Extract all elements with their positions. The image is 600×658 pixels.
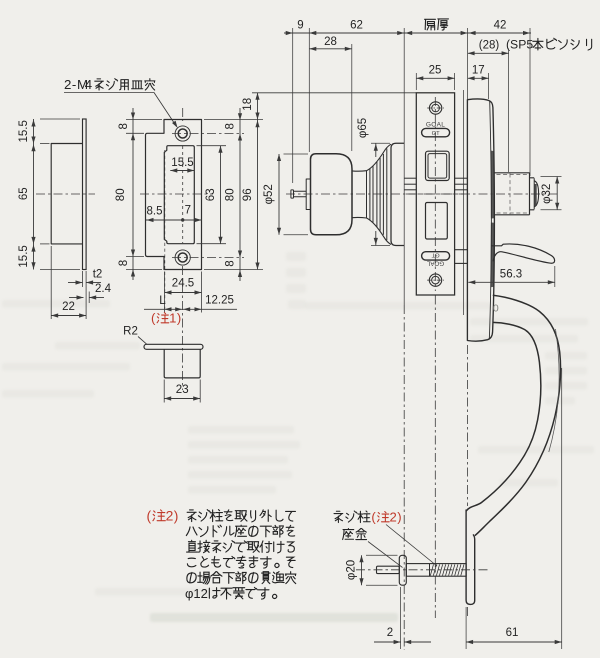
svg-text:L: L: [159, 295, 166, 307]
svg-text:8.5: 8.5: [147, 206, 163, 218]
svg-text:φ20: φ20: [346, 560, 358, 580]
svg-text:8: 8: [118, 123, 130, 129]
svg-text:0: 0: [493, 303, 499, 315]
svg-text:1: 1: [169, 311, 176, 326]
svg-text:9: 9: [297, 20, 303, 32]
svg-text:(28): (28): [479, 40, 500, 52]
svg-text:17: 17: [472, 65, 485, 77]
svg-text:(: (: [371, 510, 376, 525]
svg-text:24.5: 24.5: [172, 278, 194, 290]
svg-text:(SP5: (SP5: [506, 38, 533, 52]
svg-text:65: 65: [18, 187, 30, 200]
svg-text:): ): [397, 510, 401, 525]
svg-text:8: 8: [225, 260, 237, 266]
svg-text:2: 2: [166, 508, 174, 524]
svg-text:GT: GT: [431, 251, 440, 257]
svg-text:(: (: [151, 311, 156, 326]
svg-text:φ32: φ32: [541, 184, 553, 204]
svg-text:): ): [174, 508, 179, 524]
svg-text:GOAL: GOAL: [426, 121, 445, 128]
svg-text:R2: R2: [123, 326, 138, 338]
svg-text:2.4: 2.4: [95, 283, 112, 295]
svg-text:φ65: φ65: [357, 118, 369, 138]
svg-text:GT: GT: [432, 131, 441, 137]
svg-text:15.5: 15.5: [18, 120, 30, 142]
svg-text:28: 28: [324, 36, 337, 48]
svg-text:80: 80: [115, 188, 127, 201]
svg-text:2: 2: [390, 510, 397, 525]
svg-text:2: 2: [64, 77, 71, 92]
svg-text:12.25: 12.25: [205, 295, 234, 307]
svg-text:63: 63: [205, 188, 217, 201]
svg-text:φ52: φ52: [263, 184, 275, 204]
svg-text:7: 7: [185, 205, 191, 217]
svg-text:23: 23: [176, 384, 189, 396]
svg-text:t2: t2: [93, 269, 103, 281]
svg-text:-: -: [72, 77, 76, 92]
svg-text:18: 18: [242, 98, 254, 111]
svg-text:15.5: 15.5: [171, 157, 193, 169]
svg-text:2: 2: [387, 627, 393, 639]
svg-text:42: 42: [494, 20, 507, 32]
svg-text:4: 4: [85, 77, 92, 92]
svg-text:8: 8: [225, 123, 237, 129]
svg-text:): ): [177, 311, 181, 326]
svg-text:(: (: [147, 508, 152, 524]
svg-text:22: 22: [62, 301, 75, 313]
svg-text:15.5: 15.5: [18, 245, 30, 267]
svg-text:25: 25: [429, 65, 442, 77]
svg-text:GOAL: GOAL: [426, 260, 444, 267]
svg-text:61: 61: [506, 627, 519, 639]
svg-text:62: 62: [350, 20, 363, 32]
svg-text:96: 96: [242, 188, 254, 201]
svg-text:56.3: 56.3: [500, 269, 522, 281]
svg-text:80: 80: [225, 188, 237, 201]
svg-text:φ12: φ12: [185, 586, 208, 601]
svg-text:8: 8: [118, 260, 130, 266]
